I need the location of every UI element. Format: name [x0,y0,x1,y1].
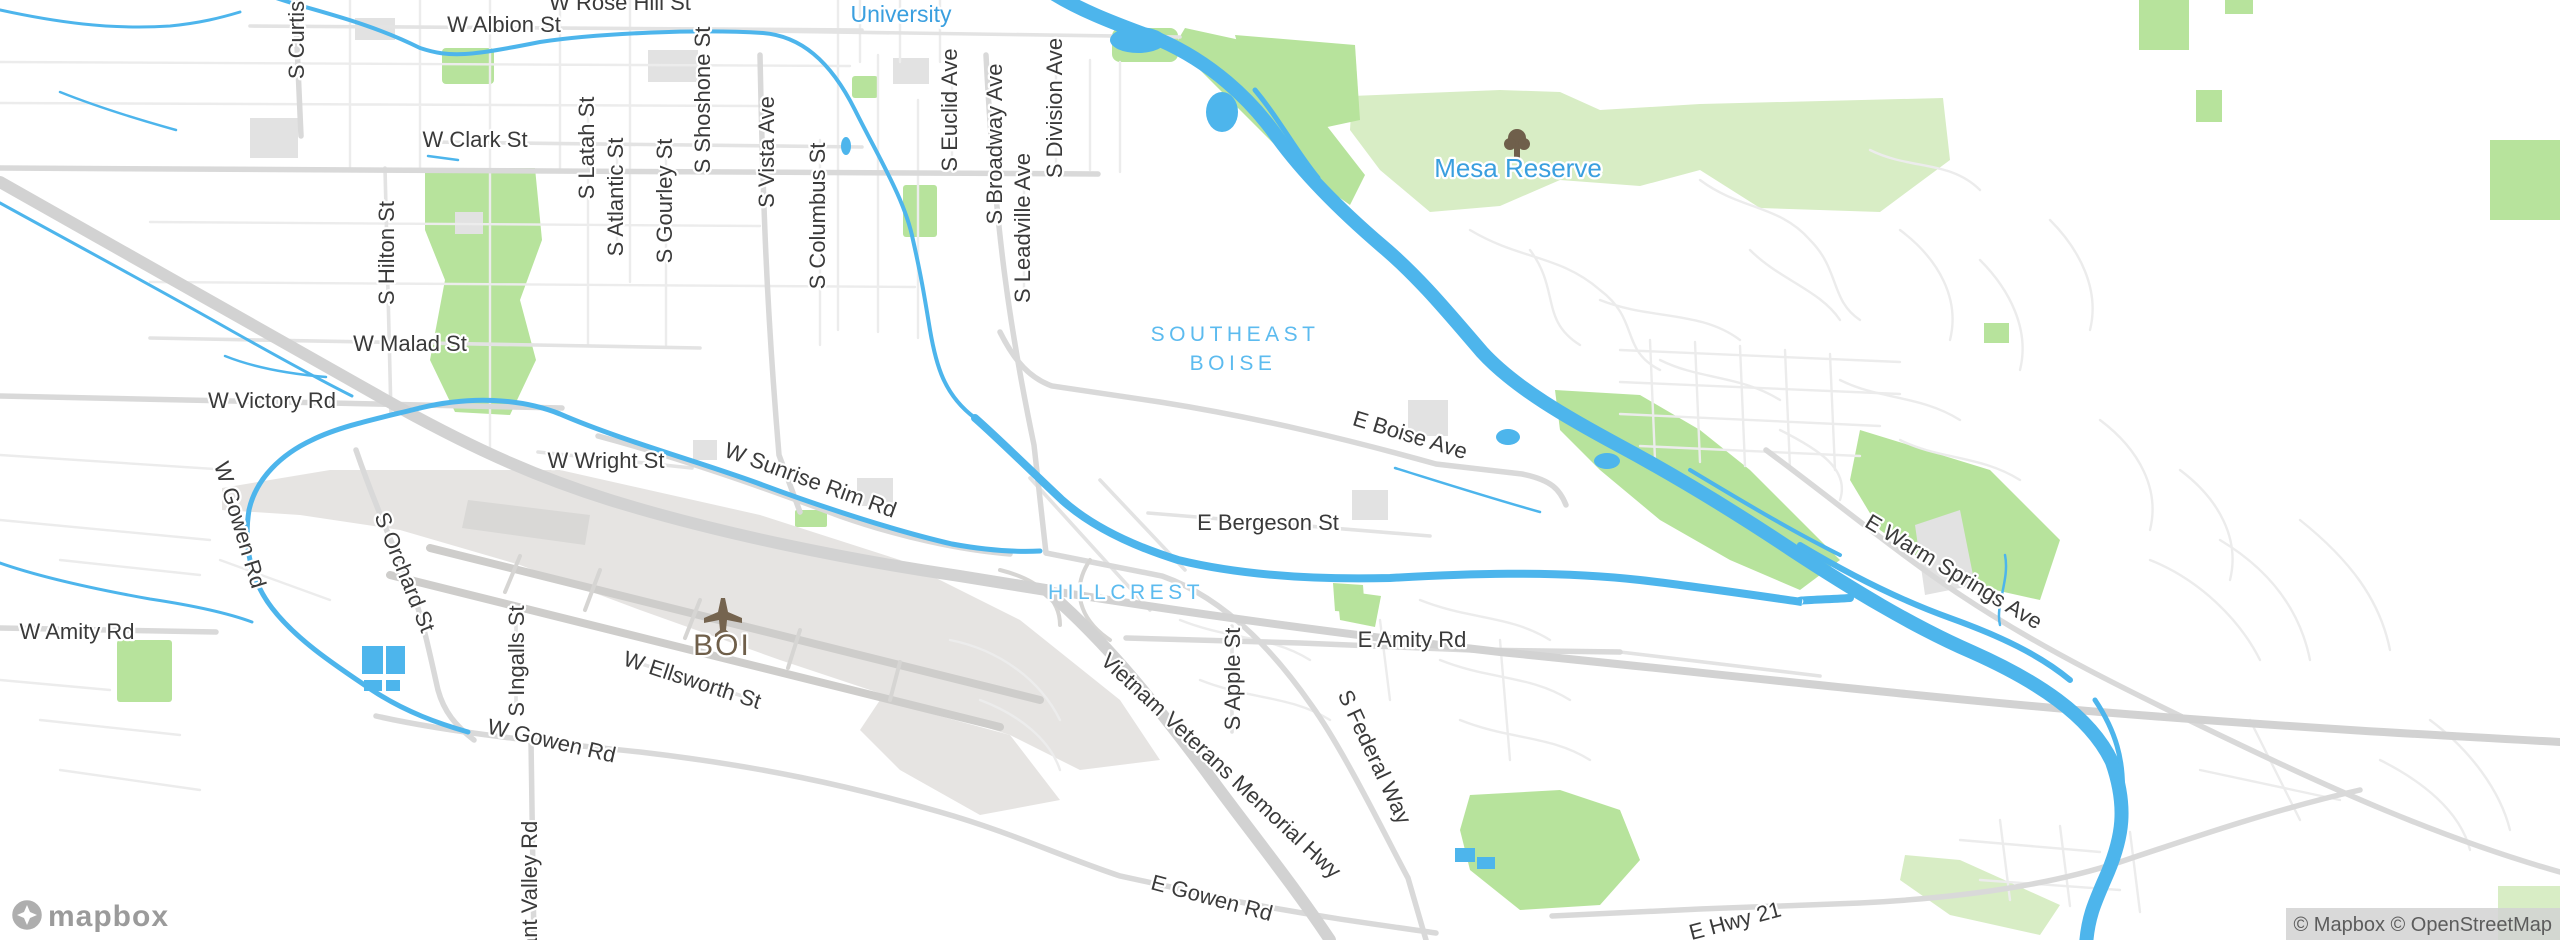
mapbox-wordmark: mapbox [48,900,169,933]
street-label: S Hilton St [374,201,399,305]
street-label: S Broadway Ave [982,63,1007,224]
street-label: S Ingalls St [504,605,529,716]
street-label: W Victory Rd [208,388,336,413]
street-label: W Wright St [548,448,665,473]
street-label: W Gowen Rd [485,714,618,768]
street-label: S Vista Ave [754,96,779,208]
street-label: E Hwy 21 [1686,896,1783,940]
airport-label-boi[interactable]: BOI [693,629,751,662]
minor-roads [0,0,2510,912]
mesa-reserve-area [1350,90,1950,212]
area-label-southeast: SOUTHEAST [1151,323,1320,346]
street-label: S Leadville Ave [1010,153,1035,303]
street-label: S Euclid Ave [937,48,962,171]
street-label: S Apple St [1220,628,1245,731]
street-label: W Rose Hill St [549,0,691,15]
place-label-university[interactable]: University [851,1,952,27]
street-label: S Latah St [574,97,599,200]
street-label: E Gowen Rd [1148,870,1275,926]
area-label-hillcrest: HILLCREST [1048,581,1204,604]
street-label: S Atlantic St [603,138,628,257]
attribution-bar[interactable]: © Mapbox © OpenStreetMap [2286,908,2560,940]
street-label: S Columbus St [805,143,830,290]
street-label: E Amity Rd [1358,627,1467,652]
attribution-text[interactable]: © Mapbox © OpenStreetMap [2294,914,2553,936]
street-label: W Clark St [422,127,527,152]
street-label: W Amity Rd [20,619,135,644]
street-label: E Bergeson St [1197,510,1339,535]
street-label: W Malad St [353,331,467,356]
mapbox-logo[interactable]: mapbox [11,899,169,933]
street-label: S Division Ave [1042,38,1067,178]
street-label: S Curtis [284,1,309,79]
street-label: S Gourley St [652,139,677,264]
area-label-boise: BOISE [1190,352,1277,375]
street-label: W Albion St [447,12,561,37]
map-canvas[interactable]: University Mesa Reserve SOUTHEAST BOISE … [0,0,2560,940]
street-label: S Shoshone St [690,27,715,174]
street-label: ant Valley Rd [517,821,542,940]
place-label-mesa-reserve[interactable]: Mesa Reserve [1434,153,1602,183]
